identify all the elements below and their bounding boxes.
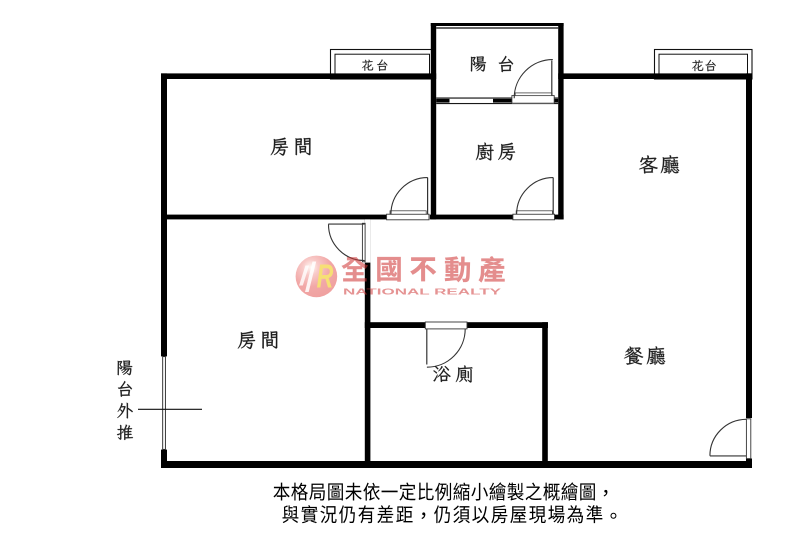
svg-text:R: R [317,259,334,296]
svg-text:NATIONAL REALTY: NATIONAL REALTY [343,286,502,296]
